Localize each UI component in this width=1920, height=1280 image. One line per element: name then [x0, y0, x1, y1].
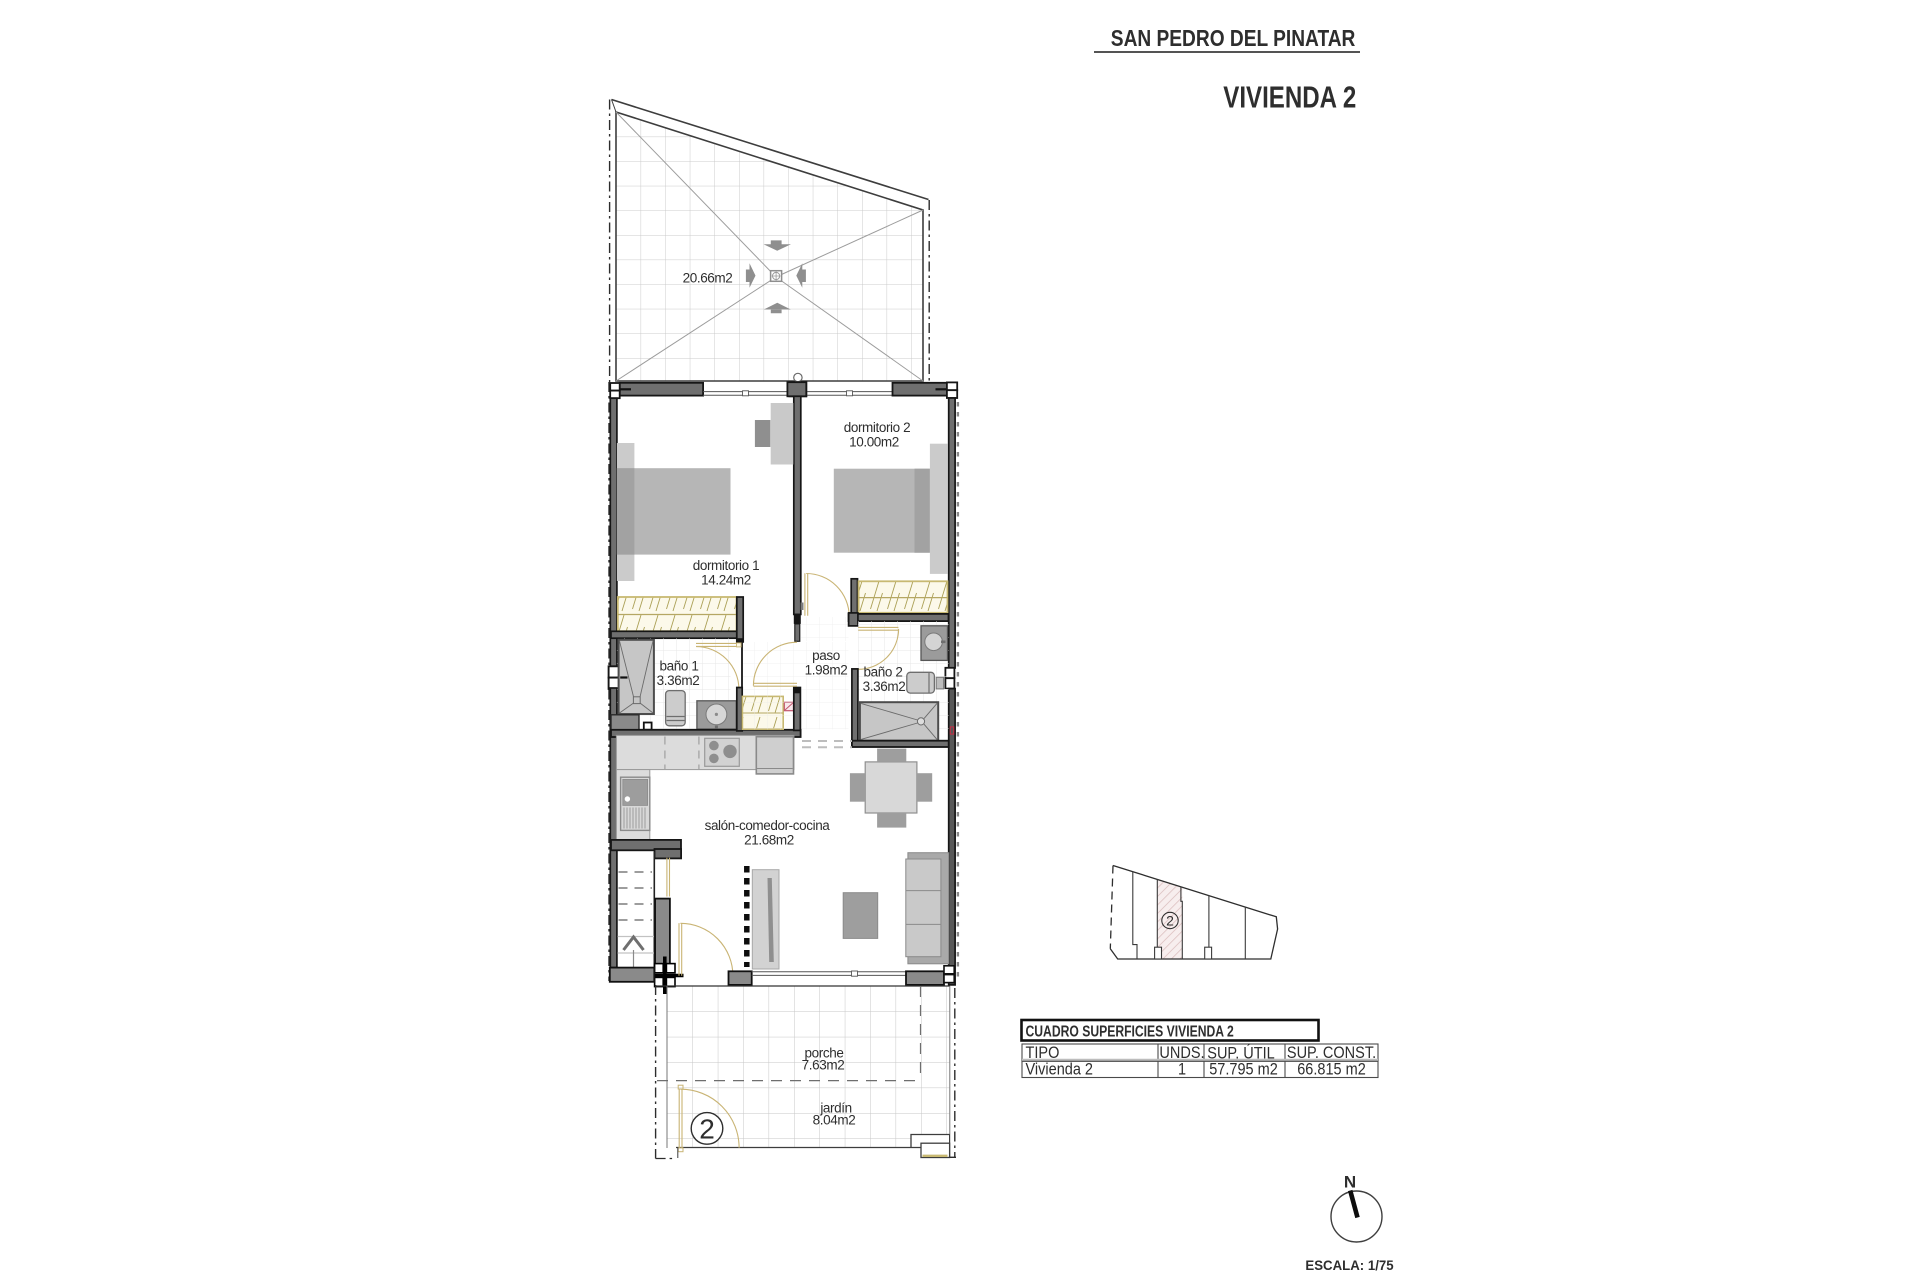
svg-text:3.36m2: 3.36m2 — [657, 673, 700, 688]
svg-text:2: 2 — [699, 1114, 715, 1145]
svg-text:ESCALA: 1/75: ESCALA: 1/75 — [1305, 1258, 1394, 1273]
svg-text:66.815 m2: 66.815 m2 — [1297, 1061, 1366, 1079]
svg-text:1: 1 — [1178, 1061, 1186, 1079]
svg-text:8.04m2: 8.04m2 — [813, 1113, 856, 1128]
svg-text:dormitorio 2: dormitorio 2 — [844, 420, 910, 435]
svg-text:20.66m2: 20.66m2 — [683, 271, 733, 286]
svg-text:baño 1: baño 1 — [660, 659, 699, 674]
svg-text:3.36m2: 3.36m2 — [863, 679, 906, 694]
svg-text:CUADRO SUPERFICIES VIVIENDA 2: CUADRO SUPERFICIES VIVIENDA 2 — [1026, 1023, 1234, 1041]
svg-text:dormitorio 1: dormitorio 1 — [693, 558, 759, 573]
svg-text:SAN PEDRO DEL PINATAR: SAN PEDRO DEL PINATAR — [1111, 25, 1356, 51]
svg-text:Vivienda 2: Vivienda 2 — [1026, 1061, 1094, 1079]
svg-text:SUP. CONST.: SUP. CONST. — [1287, 1044, 1376, 1062]
svg-text:paso: paso — [812, 648, 840, 663]
svg-text:7.63m2: 7.63m2 — [802, 1058, 845, 1073]
svg-text:TIPO: TIPO — [1026, 1044, 1060, 1062]
svg-text:14.24m2: 14.24m2 — [701, 573, 751, 588]
svg-text:UNDS.: UNDS. — [1159, 1044, 1204, 1062]
svg-text:57.795 m2: 57.795 m2 — [1209, 1061, 1278, 1079]
svg-text:2: 2 — [1166, 913, 1174, 929]
svg-text:21.68m2: 21.68m2 — [744, 833, 794, 848]
svg-text:VIVIENDA 2: VIVIENDA 2 — [1223, 80, 1356, 114]
svg-text:salón-comedor-cocina: salón-comedor-cocina — [705, 818, 831, 833]
svg-text:baño 2: baño 2 — [864, 665, 903, 680]
svg-text:1.98m2: 1.98m2 — [805, 663, 848, 678]
svg-text:N: N — [1344, 1173, 1356, 1192]
svg-text:10.00m2: 10.00m2 — [849, 435, 899, 450]
